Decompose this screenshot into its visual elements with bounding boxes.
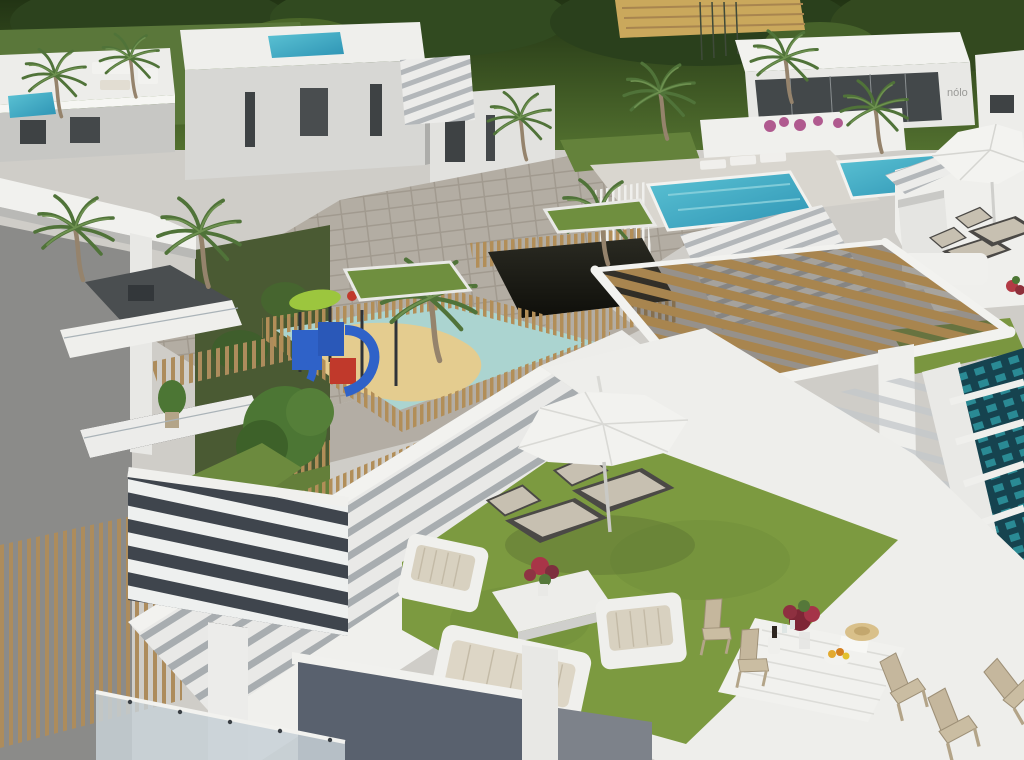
window [20, 120, 46, 144]
render-canvas: nólo [0, 0, 1024, 760]
window [370, 84, 382, 136]
rooftop-pool [8, 92, 56, 118]
red-panel [330, 358, 356, 384]
window [70, 117, 100, 143]
wine-bottle [772, 626, 777, 638]
wall-corner [522, 645, 558, 760]
window [990, 95, 1014, 113]
architectural-render: nólo [0, 0, 1024, 760]
wine-cooler [768, 636, 780, 654]
window [245, 92, 255, 147]
play-tower [292, 330, 322, 370]
sales-office-logo: nólo [947, 87, 968, 99]
rooftop-pool [268, 32, 344, 58]
window [300, 88, 328, 136]
villa-staircase [400, 55, 475, 125]
balcony-furniture [128, 285, 154, 301]
window [445, 120, 465, 162]
flower-vase [799, 632, 810, 649]
armchair [595, 592, 688, 671]
glass [782, 624, 787, 633]
glass [790, 620, 795, 629]
vase [538, 584, 548, 596]
